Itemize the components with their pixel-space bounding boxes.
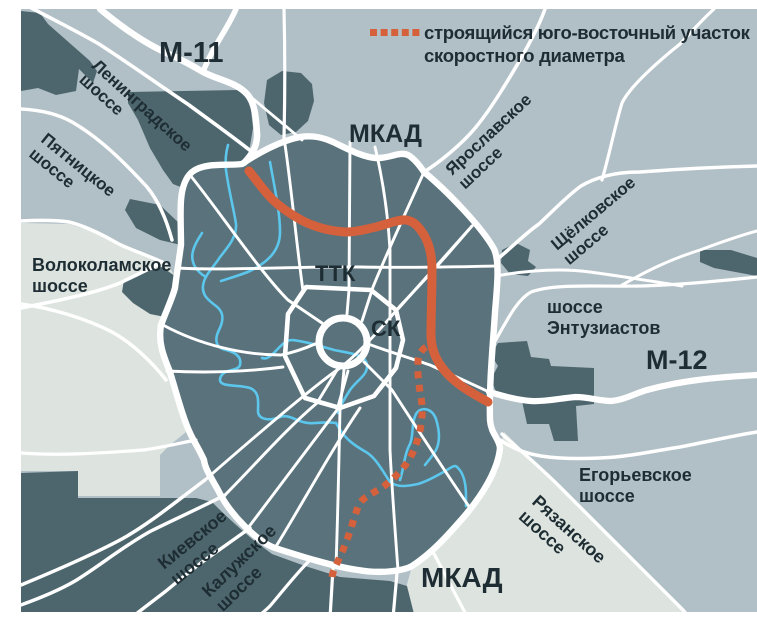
svg-text:МКАД: МКАД [421, 562, 503, 593]
svg-text:строящийся юго-восточный участ: строящийся юго-восточный участок [424, 22, 751, 43]
svg-text:шоссе: шоссе [32, 276, 88, 296]
svg-text:МКАД: МКАД [349, 120, 422, 148]
svg-text:шоссе: шоссе [579, 486, 635, 506]
svg-text:М-11: М-11 [159, 37, 223, 69]
svg-text:СК: СК [371, 316, 401, 341]
svg-text:Энтузиастов: Энтузиастов [547, 318, 660, 338]
svg-text:Егорьевское: Егорьевское [579, 465, 692, 485]
svg-text:М-12: М-12 [646, 345, 708, 375]
svg-text:скоростного диаметра: скоростного диаметра [424, 45, 625, 66]
svg-text:ТТК: ТТК [315, 261, 356, 286]
svg-text:шоссе: шоссе [547, 297, 603, 317]
svg-text:Волоколамское: Волоколамское [32, 255, 171, 275]
